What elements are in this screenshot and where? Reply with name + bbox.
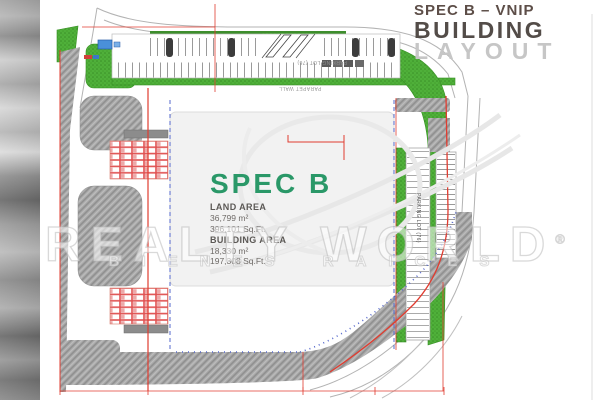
building-name: SPEC B [210, 166, 332, 201]
land-area-m2: 36,799 m² [210, 213, 332, 224]
parking-lot-top-label: PARKING LOT (76) [276, 59, 368, 65]
site-plan-canvas: SPEC B – VNIP BUILDING LAYOUT SPEC B LAN… [0, 0, 600, 400]
land-area-label: LAND AREA [210, 202, 332, 213]
title-block: SPEC B – VNIP BUILDING LAYOUT [414, 3, 560, 63]
west-dock-apron [62, 96, 168, 384]
land-area-sqft: 396,101 Sq.Ft. [210, 224, 332, 235]
title-layout: LAYOUT [414, 40, 560, 63]
building-area-label: BUILDING AREA [210, 235, 332, 246]
building-info-block: SPEC B LAND AREA 36,799 m² 396,101 Sq.Ft… [210, 166, 332, 267]
top-parking-lot [112, 34, 400, 78]
building-area-sqft: 197,308 Sq.Ft. [210, 256, 332, 267]
parapet-wall-label: PARAPET WALL [262, 85, 338, 91]
building-area-m2: 18,330 m² [210, 246, 332, 257]
parking-lot-right-label: PARKING LOT (76) [415, 183, 421, 253]
project-title: SPEC B – VNIP [414, 3, 560, 18]
